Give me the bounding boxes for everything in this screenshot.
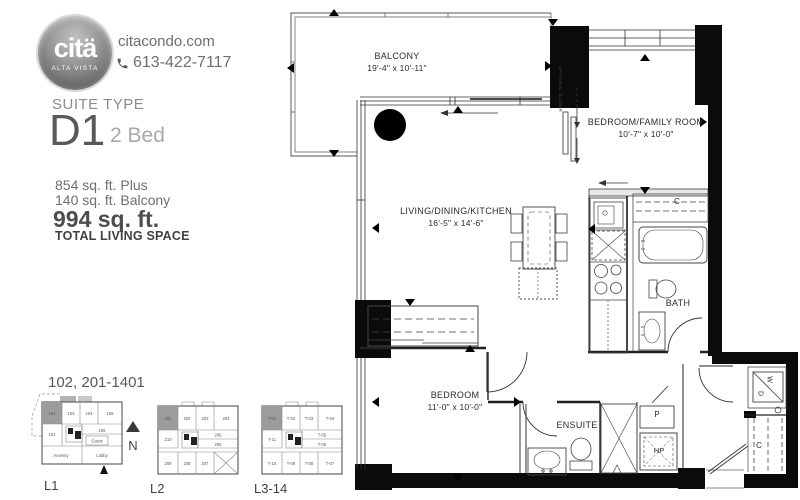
bathtub — [639, 227, 707, 263]
interior-walls — [360, 189, 786, 488]
entry-closet-tag: C — [754, 441, 764, 450]
utility-fixtures — [640, 367, 786, 472]
kitchen-island — [519, 268, 557, 299]
optional-slider-note: OPTIONAL SLIDER — [558, 66, 563, 116]
balcony-railing — [291, 13, 551, 156]
dryer-tag: D — [757, 389, 764, 399]
heat-pump-tag: HP — [649, 446, 669, 455]
bath-fixtures — [639, 227, 707, 350]
washer-tag: W — [766, 375, 773, 385]
bath-vanity — [639, 312, 665, 350]
floorplan-drawing — [0, 0, 800, 500]
room-label-bath: BATH — [651, 298, 705, 310]
stove — [595, 265, 622, 295]
ensuite-fixtures — [528, 404, 637, 475]
pantry-tag: P — [651, 410, 663, 419]
ensuite-toilet — [571, 438, 591, 460]
room-label-ensuite: ENSUITE — [537, 420, 617, 432]
structural-column — [374, 109, 406, 141]
room-label-bedroom: BEDROOM 11'-0" x 10'-0" — [386, 390, 524, 413]
ensuite-vanity — [528, 448, 566, 475]
closet-tag: C — [671, 197, 683, 206]
room-label-bedroom-family: BEDROOM/FAMILY ROOM 10'-7" x 10'-0" — [572, 117, 720, 140]
room-label-living-dining-kitchen: LIVING/DINING/KITCHEN 16'-5" x 14'-6" — [382, 206, 530, 229]
room-label-balcony: BALCONY 19'-4" x 10'-11" — [327, 51, 467, 74]
toilet-bowl — [656, 280, 676, 298]
kitchen-fixtures — [590, 198, 627, 353]
